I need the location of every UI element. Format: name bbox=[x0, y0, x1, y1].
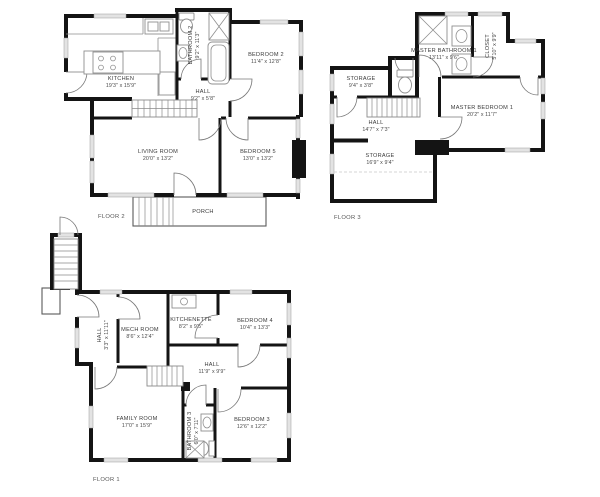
floor-3-room-label-storage-lower-name: STORAGE bbox=[365, 153, 394, 159]
floor-3-room-label-master-bathroom-dims: 13'11" x 9'6" bbox=[429, 55, 459, 61]
water-heater-fixture bbox=[172, 295, 196, 308]
floor-1-room-label-hall-center-name: HALL bbox=[205, 362, 220, 368]
floor-1-room-label-mech-room-name: MECH ROOM bbox=[121, 327, 159, 333]
toilet-fixture bbox=[209, 441, 215, 456]
floor-2-room-label-kitchen-dims: 19'3" x 15'9" bbox=[106, 83, 136, 89]
toilet-fixture bbox=[397, 70, 413, 77]
floor-1-room-label-family-room-dims: 17'0" x 15'9" bbox=[122, 423, 152, 429]
vanity-sink-fixture bbox=[452, 26, 471, 46]
floor-2-room-label-bedroom2-dims: 11'4" x 12'8" bbox=[251, 59, 281, 65]
floor-3-room-label-hall-name: HALL bbox=[369, 120, 384, 126]
floor-3-room-label-storage-upper-name: STORAGE bbox=[346, 76, 375, 82]
floor-1-room-label-hall-side-name: HALL bbox=[97, 328, 103, 343]
floor-1-room-label-kitchenette-dims: 8'2" x 9'5" bbox=[179, 324, 203, 330]
floor-1-room-label-kitchenette-name: KITCHENETTE bbox=[170, 317, 212, 323]
floor-2-room-label-living-room-dims: 20'0" x 13'2" bbox=[143, 156, 173, 162]
floor-1-label: FLOOR 1 bbox=[93, 477, 120, 483]
stove-fixture bbox=[93, 52, 123, 73]
floor-1-room-label-hall-side-dims: 3'3" x 11'11" bbox=[104, 320, 110, 350]
kitchen-island-fixture bbox=[84, 51, 160, 74]
floor-1-room-label-bedroom4-name: BEDROOM 4 bbox=[237, 318, 273, 324]
floor-1-room-label-bedroom4-dims: 10'4" x 13'3" bbox=[240, 325, 270, 331]
floor-3-room-label-closet-name: CLOSET bbox=[485, 34, 491, 58]
floor-3-room-label-master-bedroom-name: MASTER BEDROOM 1 bbox=[451, 105, 513, 111]
floor-2-room-label-porch-name: PORCH bbox=[192, 209, 213, 215]
floor-1-entry-stairs bbox=[54, 239, 78, 289]
floor-1-room-label-hall-center-dims: 11'9" x 9'9" bbox=[199, 369, 226, 375]
floor-3-room-label-master-bathroom-name: MASTER BATHROOM 1 bbox=[411, 48, 477, 54]
floor-1-room-label-bedroom3-name: BEDROOM 3 bbox=[234, 417, 270, 423]
floor-1-room-label-family-room-name: FAMILY ROOM bbox=[116, 416, 157, 422]
floor-2-stairs bbox=[132, 100, 197, 117]
floor-2-room-label-kitchen-name: KITCHEN bbox=[108, 76, 134, 82]
floor-1-room-label-bathroom3-name: BATHROOM 3 bbox=[187, 411, 193, 450]
floor-3-room-label-hall-dims: 14'7" x 7'3" bbox=[362, 127, 389, 133]
floor-2-room-label-hall-name: HALL bbox=[196, 89, 211, 95]
floorplan-image: KITCHEN 19'3" x 15'9" BATHROOM 2 9'2" x … bbox=[0, 0, 600, 497]
floor-2-room-label-hall-dims: 9'2" x 5'8" bbox=[191, 96, 215, 102]
floor-3-room-label-storage-upper-dims: 9'4" x 3'8" bbox=[349, 83, 373, 89]
floor-3-label: FLOOR 3 bbox=[334, 215, 361, 221]
floor-2-room-label-bathroom2-dims: 9'2" x 11'3" bbox=[195, 32, 201, 59]
floor-3-stairs bbox=[367, 98, 420, 117]
floor-1-room-label-bathroom3-dims: 6'0" x 7'11" bbox=[194, 418, 200, 445]
floor-1-room-label-mech-room-dims: 8'6" x 12'4" bbox=[126, 334, 153, 340]
floor-2-room-label-living-room-name: LIVING ROOM bbox=[138, 149, 178, 155]
floor-3-room-label-closet-dims: 5'10" x 9'9" bbox=[492, 32, 498, 59]
floor-1-room-label-bedroom3-dims: 12'6" x 12'2" bbox=[237, 424, 267, 430]
floor-2-label: FLOOR 2 bbox=[98, 214, 125, 220]
floor-2-room-label-bedroom5-name: BEDROOM 5 bbox=[240, 149, 276, 155]
floor-2-room-label-bathroom2-name: BATHROOM 2 bbox=[188, 25, 194, 64]
water-closet-fixtures bbox=[397, 70, 413, 93]
floorplan-page: KITCHEN 19'3" x 15'9" BATHROOM 2 9'2" x … bbox=[0, 0, 600, 497]
floor-2-room-label-bedroom2-name: BEDROOM 2 bbox=[248, 52, 284, 58]
floor-3-room-label-master-bedroom-dims: 20'2" x 11'7" bbox=[467, 112, 497, 118]
floor-3-room-label-storage-lower-dims: 16'9" x 9'4" bbox=[366, 160, 393, 166]
floor-1-mid-stairs bbox=[147, 366, 183, 386]
floor-2-room-label-bedroom5-dims: 13'0" x 13'2" bbox=[243, 156, 273, 162]
